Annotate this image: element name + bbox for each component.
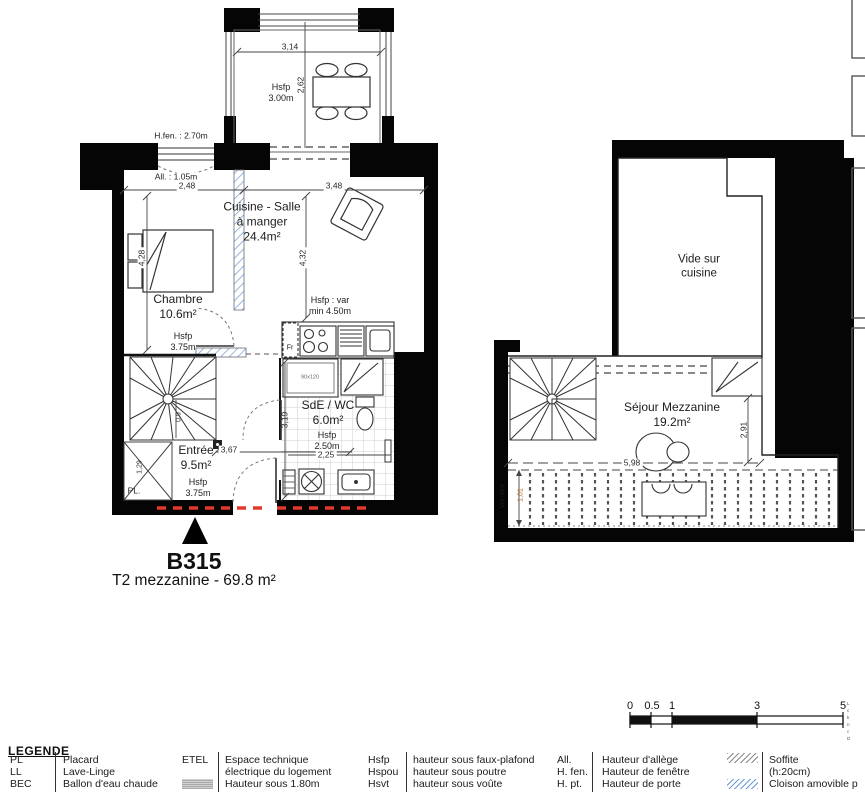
unit-number: B315 bbox=[167, 548, 222, 575]
dim-sde-height: 3,19 bbox=[280, 412, 291, 429]
sejour-window bbox=[712, 358, 762, 396]
verriere-dim-label: 1,01 bbox=[518, 488, 527, 502]
legend-label: électrique du logement bbox=[225, 766, 331, 778]
dim-entree-width: 3,67 bbox=[219, 446, 240, 455]
sheet-edge-cutoff-text: L c k n c D bbox=[847, 700, 864, 742]
legend-label: Hauteur de porte bbox=[602, 778, 681, 790]
dim-terrace-height: 2,62 bbox=[296, 77, 307, 94]
legend-label: hauteur sous faux-plafond bbox=[413, 754, 534, 766]
legend-label: hauteur sous voûte bbox=[413, 778, 502, 790]
unit-type-label: T2 mezzanine - 69.8 m² bbox=[112, 572, 276, 590]
legend-abbr: H. fen. bbox=[557, 766, 588, 778]
legend-label: Hauteur sous 1.80m bbox=[225, 778, 320, 790]
legend-divider bbox=[762, 752, 763, 792]
washing-machine bbox=[283, 469, 324, 494]
legend-abbr: BEC bbox=[10, 778, 32, 790]
radiator bbox=[385, 440, 391, 462]
room-label-chambre: Chambre 10.6m² bbox=[153, 292, 202, 322]
floorplan-linework bbox=[0, 0, 865, 800]
scale-tick-3: 3 bbox=[754, 700, 760, 712]
room-label-sde: SdE / WC 6.0m² bbox=[302, 398, 355, 428]
scale-tick-1: 1 bbox=[669, 700, 675, 712]
room-label-sejour: Séjour Mezzanine 19.2m² bbox=[624, 400, 720, 430]
bath-cabinet bbox=[341, 359, 383, 395]
legend-divider bbox=[218, 752, 219, 792]
verriere-label: Verrière bbox=[500, 484, 509, 509]
sofa bbox=[636, 433, 689, 471]
legend-abbr: Hspou bbox=[368, 766, 398, 778]
dim-chambre-width: 2,48 bbox=[177, 182, 198, 191]
legend-swatch-cloison bbox=[727, 779, 758, 789]
legend-label: Soffite (h:20cm) bbox=[769, 754, 810, 778]
window-height-label: H.fen. : 2.70m bbox=[152, 132, 209, 141]
dim-terrace-width: 3,14 bbox=[280, 43, 301, 52]
terrace-opening bbox=[270, 147, 350, 159]
cuisine-hsfp-label: Hsfp : var min 4.50m bbox=[309, 295, 351, 318]
placard-label: PL. bbox=[128, 486, 141, 497]
room-label-entree: Entrée 9.5m² bbox=[178, 443, 213, 473]
legend-abbr: ETEL bbox=[182, 754, 208, 766]
armchair bbox=[330, 187, 384, 241]
scale-tick-5: 5 bbox=[840, 700, 846, 712]
legend-label: Placard bbox=[63, 754, 99, 766]
kitchen-counter bbox=[282, 322, 394, 358]
scale-tick-05: 0.5 bbox=[644, 700, 659, 712]
legend-abbr: LL bbox=[10, 766, 22, 778]
dim-hall-width: 0,9 bbox=[176, 412, 185, 422]
desk bbox=[642, 482, 706, 516]
legend-divider bbox=[55, 752, 56, 792]
scale-bar bbox=[630, 712, 843, 728]
legend-divider bbox=[406, 752, 407, 792]
terrace-table-chairs bbox=[313, 64, 370, 120]
dim-cuisine-width: 3,48 bbox=[324, 182, 345, 191]
legend-abbr: PL bbox=[10, 754, 23, 766]
entry-door bbox=[233, 458, 276, 503]
sde-door bbox=[243, 400, 281, 440]
legend-abbr: Hsfp bbox=[368, 754, 390, 766]
north-arrow bbox=[182, 517, 208, 544]
legend-divider bbox=[592, 752, 593, 792]
chambre-hsfp-label: Hsfp 3.75m bbox=[170, 331, 195, 354]
entree-hsfp-label: Hsfp 3.75m bbox=[185, 477, 210, 500]
legend-swatch-soffite bbox=[727, 753, 758, 763]
scale-tick-0: 0 bbox=[627, 700, 633, 712]
legend-label: Cloison amovible p bbox=[769, 778, 858, 790]
fridge-label: Fr bbox=[287, 345, 294, 354]
legend-label: Ballon d'eau chaude bbox=[63, 778, 158, 790]
legend-abbr: All. bbox=[557, 754, 572, 766]
dim-sejour-width: 5,98 bbox=[622, 459, 643, 468]
legend-abbr: H. pt. bbox=[557, 778, 582, 790]
room-label-cuisine: Cuisine - Salle à manger 24.4m² bbox=[223, 200, 300, 245]
washbasin bbox=[338, 470, 374, 494]
shower-size-label: 90x120 bbox=[301, 375, 319, 382]
legend-label: Espace technique bbox=[225, 754, 308, 766]
spiral-stair-l2 bbox=[510, 358, 596, 440]
dim-cuisine-height: 4,32 bbox=[299, 248, 308, 269]
spiral-stair-l1 bbox=[130, 357, 216, 440]
terrace-hsfp-label: Hsfp 3.00m bbox=[268, 82, 293, 105]
dim-sejour-height: 2,91 bbox=[739, 422, 750, 439]
floorplan-sheet: Hsfp 3.00m 3,14 2,62 H.fen. : 2.70m All.… bbox=[0, 0, 865, 800]
legend-abbr: Hsvt bbox=[368, 778, 389, 790]
toilet bbox=[356, 397, 374, 430]
room-label-vide: Vide sur cuisine bbox=[678, 253, 720, 282]
legend-swatch-h180 bbox=[182, 779, 213, 789]
dim-chambre-height: 4,28 bbox=[138, 248, 147, 269]
chambre-window bbox=[158, 148, 214, 174]
dim-sde-width: 2,25 bbox=[316, 451, 337, 460]
legend-label: Hauteur d'allège bbox=[602, 754, 678, 766]
legend-label: hauteur sous poutre bbox=[413, 766, 506, 778]
legend-label: Lave-Linge bbox=[63, 766, 115, 778]
dim-placard: 1,29 bbox=[137, 460, 146, 474]
legend-label: Hauteur de fenêtre bbox=[602, 766, 690, 778]
